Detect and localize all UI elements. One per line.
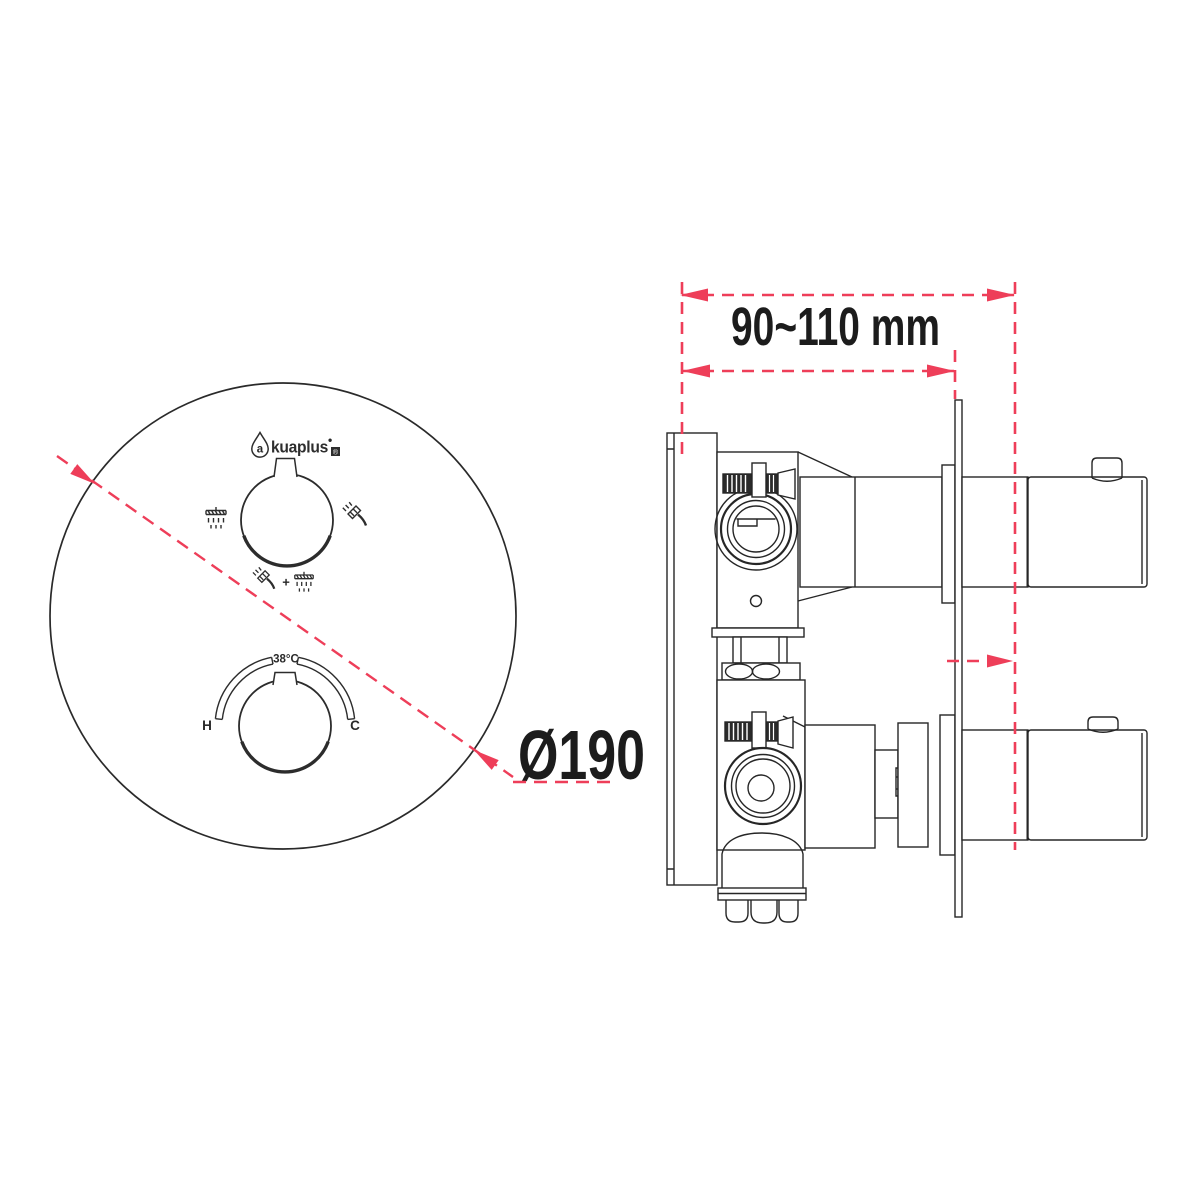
diameter-arrowhead-bottom — [474, 750, 499, 770]
diameter-arrowhead-top — [70, 464, 95, 484]
technical-drawing: a kuaplus • ® + — [0, 0, 1200, 1200]
cold-label: C — [350, 718, 360, 733]
upper-trim-collar — [942, 465, 955, 603]
temperature-knob-tab — [273, 673, 297, 686]
cartridge-step — [875, 750, 898, 818]
hot-label: H — [202, 718, 212, 733]
upper-valve-body — [712, 452, 955, 637]
lower-trim-knob — [962, 717, 1147, 840]
connector-stem — [722, 637, 800, 680]
brand-droplet-letter: a — [257, 444, 264, 456]
lower-trim-collar — [940, 715, 955, 855]
front-view: a kuaplus • ® + — [50, 383, 645, 849]
safety-stop-label: 38°C — [273, 654, 299, 666]
lower-valve-body — [717, 680, 955, 923]
wall-pointer-arrowhead — [987, 655, 1013, 668]
figure-canvas: a kuaplus • ® + — [0, 0, 1200, 1200]
dim-arrow-right-outer — [987, 289, 1015, 302]
plus-sign: + — [282, 575, 290, 590]
lower-disc — [898, 723, 928, 847]
upper-clamp-tab — [752, 463, 766, 497]
brand-name: kuaplus — [271, 438, 328, 457]
brand-bullet: • — [328, 433, 332, 447]
side-view — [667, 400, 1147, 923]
diverter-knob-tab — [274, 459, 297, 478]
dim-arrow-left-outer — [680, 289, 708, 302]
lower-clamp-tab — [752, 712, 766, 748]
wall-plate — [955, 400, 962, 917]
mounting-bracket — [667, 433, 717, 885]
dim-arrow-right-inner — [927, 365, 955, 378]
depth-label: 90~110 mm — [731, 297, 940, 357]
registered-mark: ® — [333, 449, 339, 457]
dim-arrow-left-inner — [682, 365, 710, 378]
upper-trim-knob — [962, 458, 1147, 587]
